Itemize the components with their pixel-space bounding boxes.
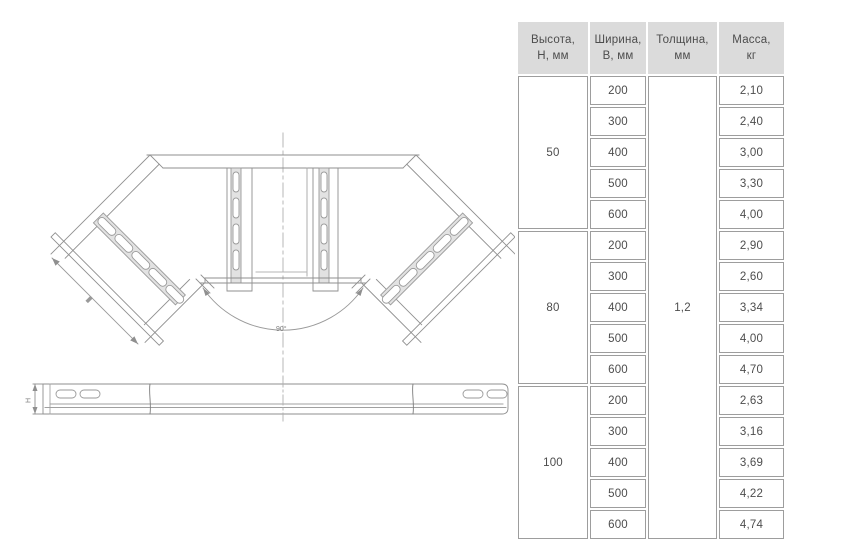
col-header-height: Высота, Н, мм <box>518 22 588 74</box>
width-value: 200 <box>590 76 646 105</box>
mass-value: 2,40 <box>719 107 784 136</box>
width-value: 400 <box>590 448 646 477</box>
width-value: 500 <box>590 479 646 508</box>
angle-label: 90° <box>276 325 287 333</box>
mass-value: 2,63 <box>719 386 784 415</box>
col-header-width: Ширина, В, мм <box>590 22 646 74</box>
width-value: 600 <box>590 510 646 539</box>
thickness-value: 1,2 <box>648 76 717 539</box>
mass-value: 3,69 <box>719 448 784 477</box>
width-value: 500 <box>590 324 646 353</box>
leg-length-dimension <box>52 258 138 344</box>
technical-drawing: 90° H <box>0 0 515 560</box>
middle-rung-left <box>227 168 252 291</box>
width-value: 300 <box>590 262 646 291</box>
mass-value: 2,10 <box>719 76 784 105</box>
width-value: 400 <box>590 138 646 167</box>
mass-value: 4,00 <box>719 324 784 353</box>
height-value: 100 <box>518 386 588 539</box>
width-value: 200 <box>590 231 646 260</box>
table-row: 50 200 1,2 2,10 <box>518 76 784 105</box>
header-row: Высота, Н, мм Ширина, В, мм Толщина, мм … <box>518 22 784 74</box>
mass-value: 4,70 <box>719 355 784 384</box>
mass-value: 4,22 <box>719 479 784 508</box>
bend-top-view: 90° <box>43 133 515 380</box>
height-value: 80 <box>518 231 588 384</box>
height-dimension: H <box>26 384 44 414</box>
width-value: 300 <box>590 107 646 136</box>
bend-side-view: H <box>26 377 509 421</box>
height-dim-label: H <box>26 398 33 403</box>
width-value: 200 <box>590 386 646 415</box>
width-value: 400 <box>590 293 646 322</box>
middle-rung-right <box>313 168 338 291</box>
width-value: 500 <box>590 169 646 198</box>
mass-value: 3,16 <box>719 417 784 446</box>
mass-value: 3,30 <box>719 169 784 198</box>
mass-value: 2,90 <box>719 231 784 260</box>
mass-value: 4,74 <box>719 510 784 539</box>
col-header-mass: Масса, кг <box>719 22 784 74</box>
spec-table: Высота, Н, мм Ширина, В, мм Толщина, мм … <box>516 20 786 541</box>
height-value: 50 <box>518 76 588 229</box>
page: 90° H <box>0 0 868 560</box>
width-value: 300 <box>590 417 646 446</box>
col-header-thickness: Толщина, мм <box>648 22 717 74</box>
width-value: 600 <box>590 355 646 384</box>
mass-value: 3,00 <box>719 138 784 167</box>
mass-value: 3,34 <box>719 293 784 322</box>
mass-value: 4,00 <box>719 200 784 229</box>
mass-value: 2,60 <box>719 262 784 291</box>
width-value: 600 <box>590 200 646 229</box>
